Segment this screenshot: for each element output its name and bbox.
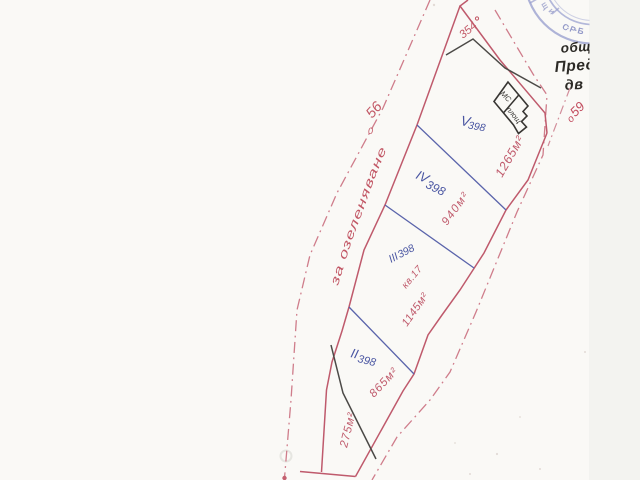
svg-text:дв: дв: [564, 77, 584, 94]
svg-text:0: 0: [368, 126, 373, 136]
